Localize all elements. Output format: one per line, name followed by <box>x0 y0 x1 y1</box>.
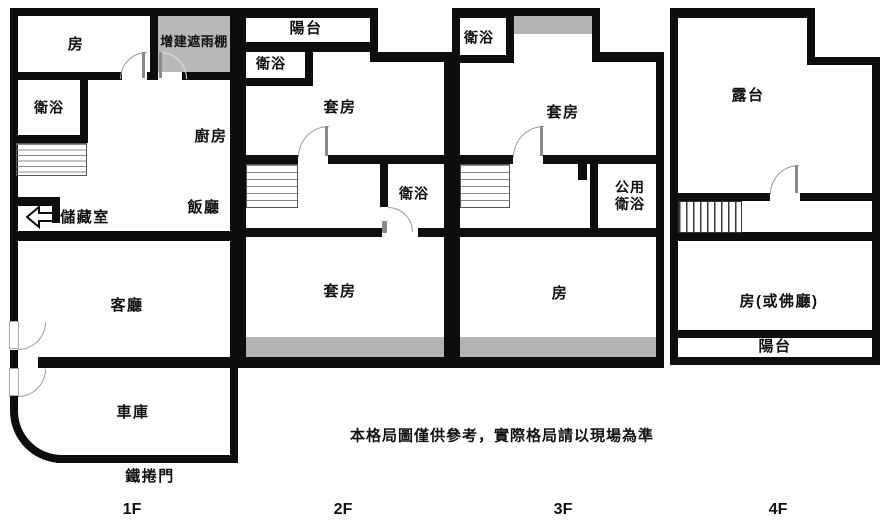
room-label-dining-1f: 飯廳 <box>187 199 220 217</box>
wall <box>150 8 158 80</box>
door-leaf-icon <box>325 126 328 156</box>
room-label-suite-upper-2f: 套房 <box>323 99 356 117</box>
wall <box>543 155 664 164</box>
room-label-shared-bathroom-3f: 公用 衛浴 <box>615 179 645 213</box>
room-label-bathroom-upper-3f: 衛浴 <box>464 30 494 47</box>
floor-label-3f: 3F <box>554 501 573 519</box>
stairs-icon <box>678 201 742 233</box>
room-label-bathroom-upper-2f: 衛浴 <box>256 56 286 73</box>
room-label-storage-1f: 儲藏室 <box>60 209 110 227</box>
shaded-strip <box>460 337 656 357</box>
wall <box>10 72 122 80</box>
wall <box>38 357 238 368</box>
room-label-suite-3f: 套房 <box>546 104 579 122</box>
wall <box>80 72 88 143</box>
door-arc-icon <box>18 322 46 350</box>
stairs-icon <box>246 164 298 208</box>
wall <box>328 155 452 164</box>
wall <box>590 155 598 237</box>
entrance-arrow-icon <box>26 205 54 229</box>
wall <box>807 57 880 65</box>
door-leaf-icon <box>382 221 387 233</box>
door-leaf-icon <box>9 368 19 396</box>
wall <box>670 8 815 18</box>
wall <box>872 57 880 365</box>
room-label-room-4f: 房(或佛廳) <box>740 293 819 311</box>
stairs-icon <box>16 143 87 176</box>
shared-bathroom-line1: 公用 <box>615 179 645 195</box>
wall <box>238 357 452 368</box>
door-leaf-icon <box>795 165 798 193</box>
shared-bathroom-line2: 衛浴 <box>615 196 645 212</box>
wall <box>238 8 246 368</box>
wall <box>238 78 313 86</box>
floor-label-1f: 1F <box>123 501 142 519</box>
wall <box>238 8 378 18</box>
room-label-balcony-4f: 陽台 <box>758 338 791 356</box>
wall <box>444 52 452 368</box>
door-arc-icon <box>388 207 413 232</box>
floor-label-2f: 2F <box>334 501 353 519</box>
room-label-suite-lower-2f: 套房 <box>323 283 356 301</box>
wall <box>238 155 298 164</box>
door-leaf-icon <box>142 52 145 78</box>
wall <box>10 8 238 16</box>
room-label-bathroom-1f: 衛浴 <box>34 100 64 117</box>
rounded-corner-wall <box>10 393 62 463</box>
room-label-bedroom-1f: 房 <box>68 36 85 54</box>
wall <box>452 228 664 237</box>
floor-label-4f: 4F <box>769 501 788 519</box>
room-label-living-1f: 客廳 <box>110 297 143 315</box>
room-label-room-3f: 房 <box>552 285 569 303</box>
room-label-balcony-2f: 陽台 <box>289 20 322 38</box>
wall <box>182 72 238 80</box>
shaded-strip <box>514 16 592 34</box>
wall <box>10 350 18 369</box>
wall <box>370 52 452 62</box>
floor-plan: 房 增建遮雨棚 衛浴 廚房 儲藏室 飯廳 客廳 車庫 鐵捲門 陽台 衛浴 套房 … <box>0 0 889 525</box>
wall <box>418 228 452 237</box>
wall <box>452 357 664 368</box>
room-label-terrace-4f: 露台 <box>731 87 764 105</box>
wall <box>238 228 382 237</box>
wall <box>670 8 678 365</box>
disclaimer-text: 本格局圖僅供參考，實際格局請以現場為準 <box>350 425 654 446</box>
wall <box>452 55 514 63</box>
wall <box>670 193 770 201</box>
wall <box>578 164 587 180</box>
room-label-garage-1f: 車庫 <box>116 404 149 422</box>
door-leaf-icon <box>9 321 19 349</box>
room-label-rain-canopy-1f: 增建遮雨棚 <box>160 34 228 50</box>
room-label-bathroom-mid-2f: 衛浴 <box>399 186 429 203</box>
stairs-icon <box>460 164 510 208</box>
shaded-strip <box>246 337 444 357</box>
wall <box>10 231 238 241</box>
label-rolling-door-1f: 鐵捲門 <box>125 468 175 486</box>
wall <box>800 193 880 201</box>
wall <box>592 52 664 62</box>
wall <box>56 455 238 463</box>
door-leaf-icon <box>540 126 543 156</box>
wall <box>452 155 513 164</box>
wall <box>670 357 880 365</box>
wall <box>656 52 664 368</box>
wall <box>10 135 88 143</box>
door-leaf-icon <box>159 52 162 78</box>
wall <box>380 163 388 207</box>
wall <box>670 232 880 241</box>
wall <box>670 330 880 338</box>
room-label-kitchen-1f: 廚房 <box>194 128 227 146</box>
